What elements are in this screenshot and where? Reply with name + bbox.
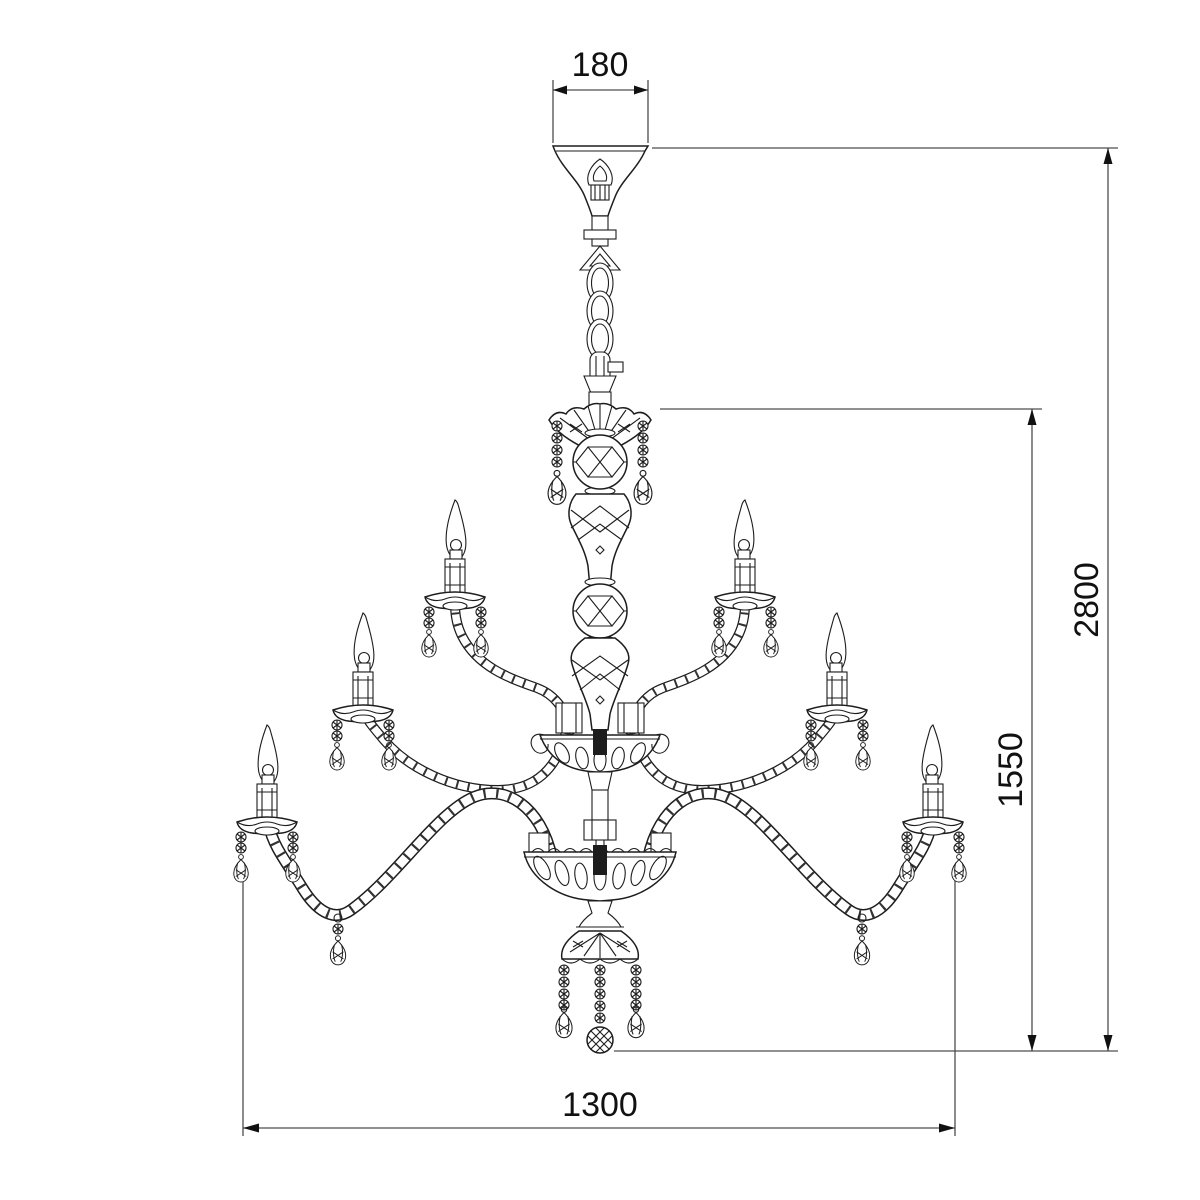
set-screw	[608, 362, 623, 372]
dim-overall-drop-label: 2800	[1068, 562, 1106, 638]
dim-body-height-label: 1550	[992, 732, 1030, 808]
bottom-dome	[562, 931, 639, 963]
bottom-ball	[587, 1027, 613, 1053]
dim-canopy-width-label: 180	[572, 46, 629, 84]
chandelier-technical-drawing: 180 2800 1550 1300	[0, 0, 1200, 1200]
dim-body-width-label: 1300	[562, 1086, 638, 1124]
